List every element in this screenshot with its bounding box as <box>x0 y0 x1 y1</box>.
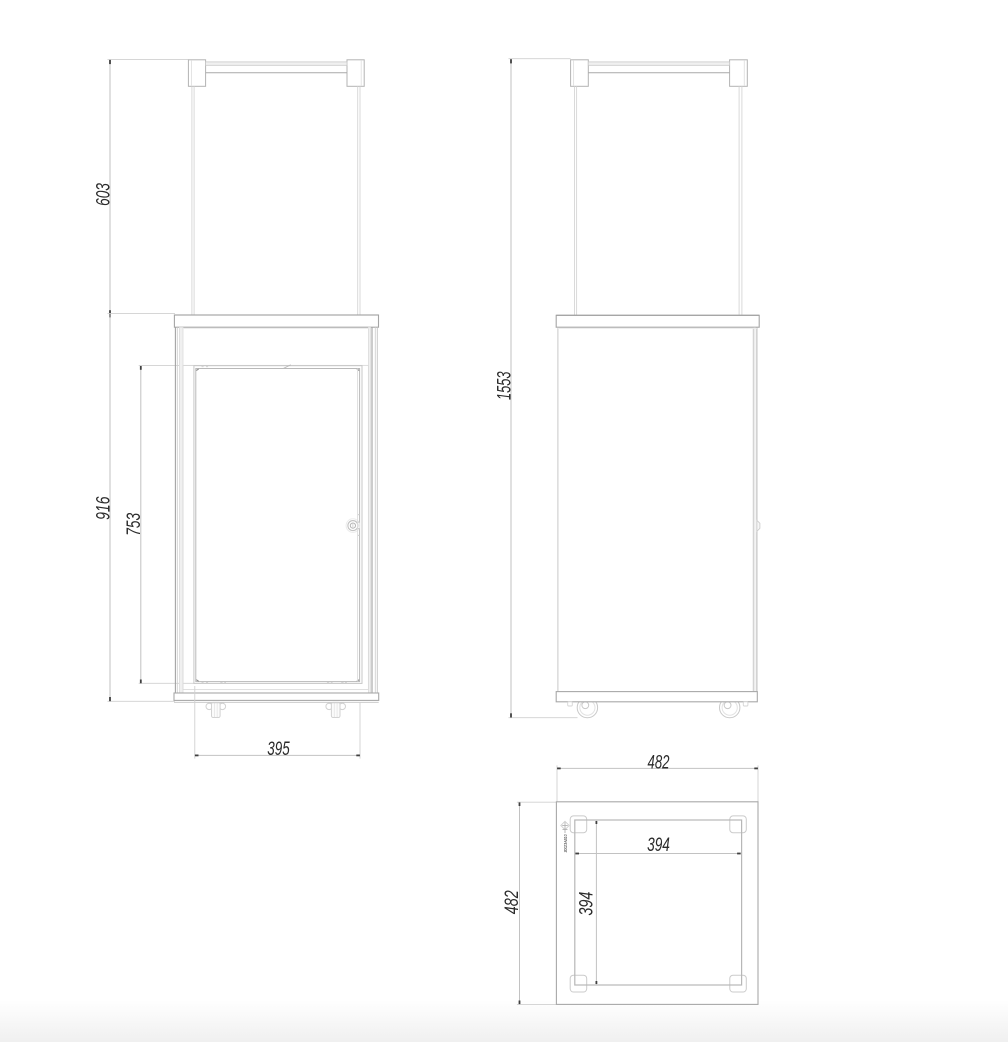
svg-text:753: 753 <box>123 513 145 536</box>
svg-text:482: 482 <box>648 752 670 774</box>
svg-text:1553: 1553 <box>494 371 516 400</box>
svg-text:394: 394 <box>576 891 598 915</box>
svg-text:394: 394 <box>647 834 670 856</box>
svg-text:916: 916 <box>93 496 115 520</box>
svg-text:395: 395 <box>267 738 289 760</box>
svg-text:603: 603 <box>93 183 115 206</box>
svg-text:30023AB10: 30023AB10 <box>563 834 568 853</box>
svg-text:482: 482 <box>501 890 523 914</box>
